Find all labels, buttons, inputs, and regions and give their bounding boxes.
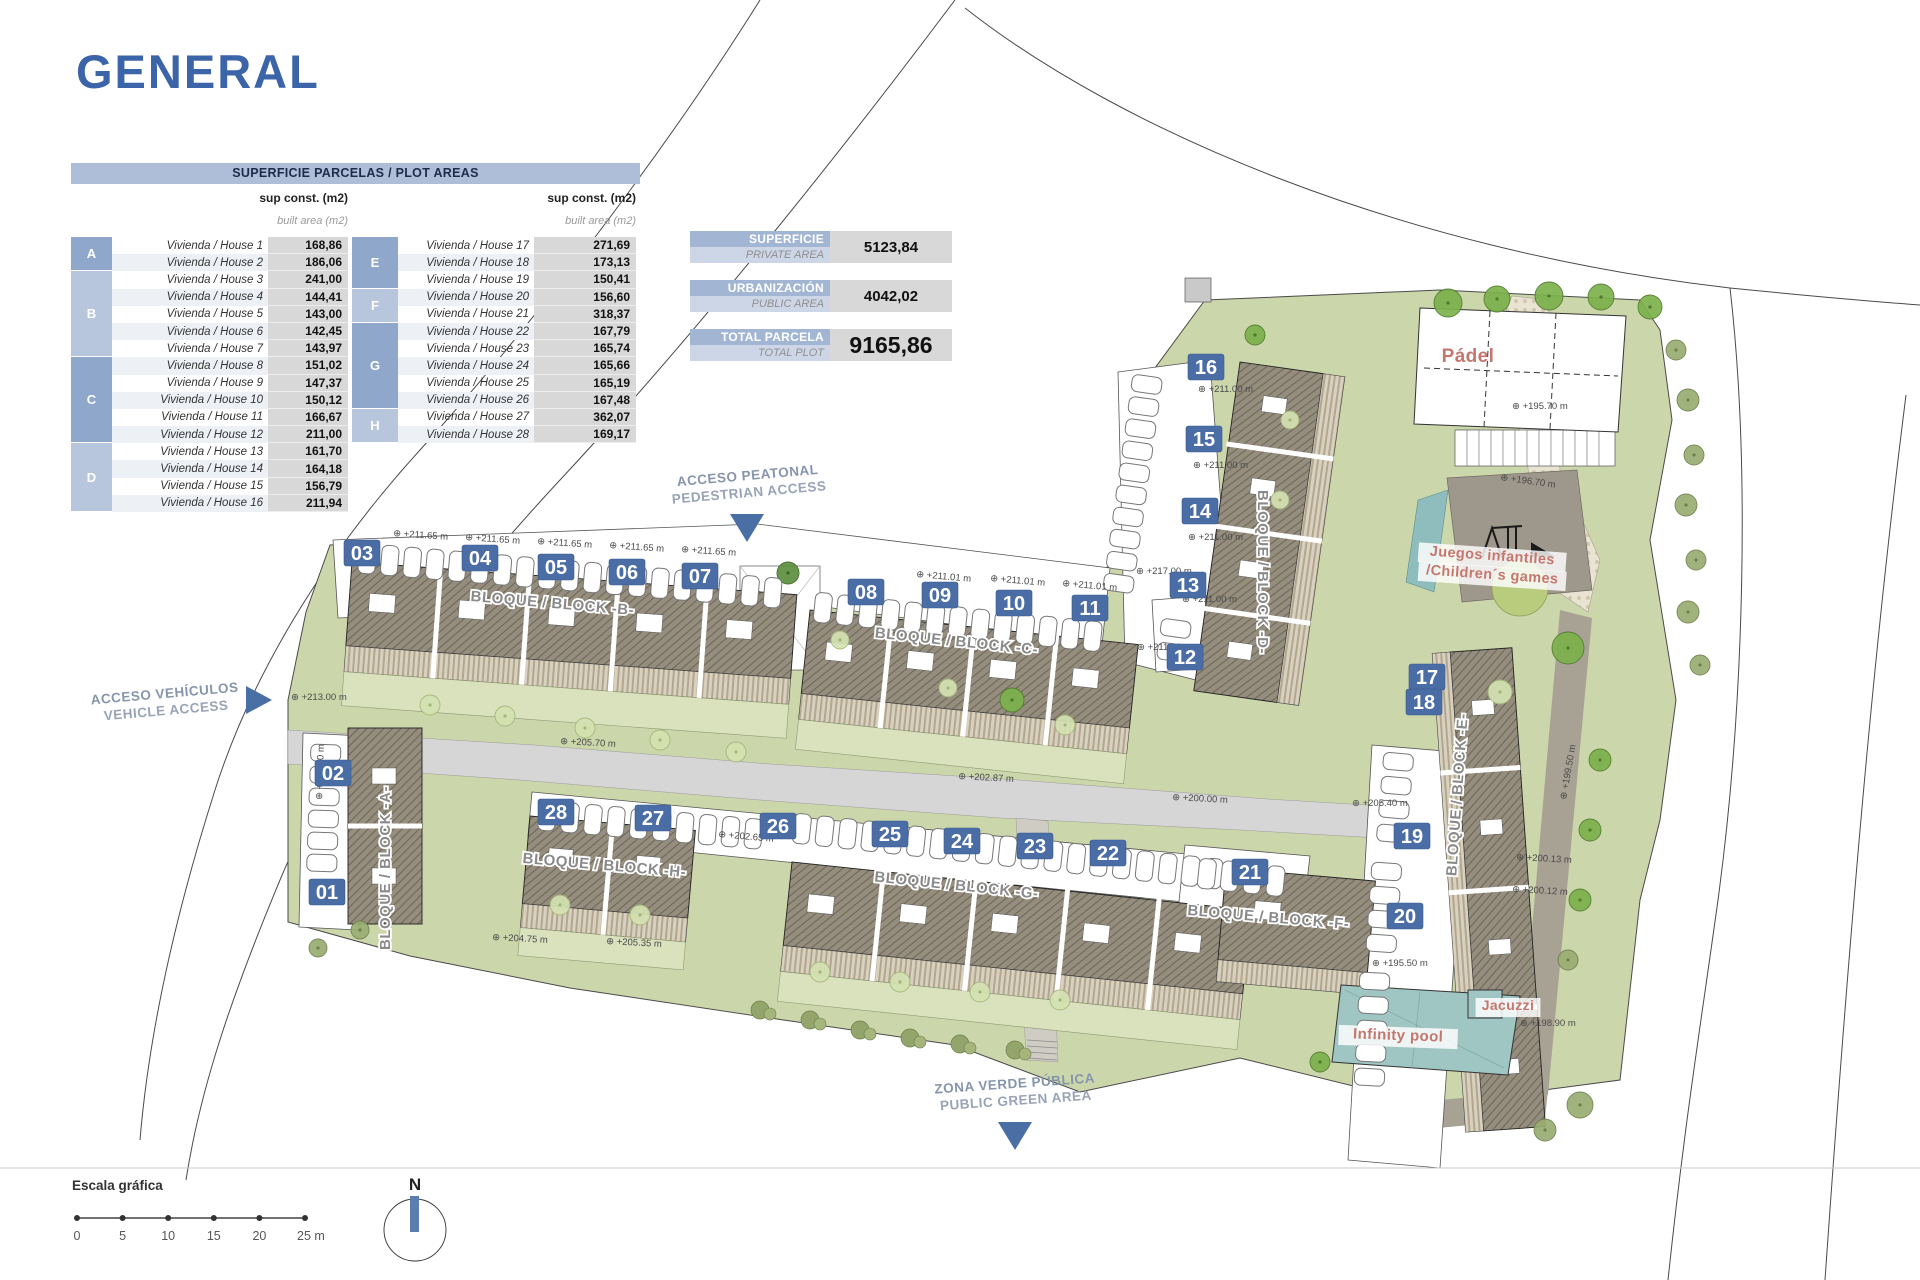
house-area-value: 211,94	[268, 495, 348, 512]
house-area-value: 165,74	[534, 340, 636, 357]
bush-icon	[764, 1008, 776, 1020]
tree-center	[1063, 723, 1066, 726]
tree-center	[1278, 498, 1281, 501]
col-subheader-left: built area (m2)	[188, 215, 348, 227]
car-space	[1038, 616, 1058, 648]
amenity-label-group: Infinity pool	[1338, 1025, 1458, 1049]
house-area-value: 143,97	[268, 340, 348, 357]
car-space	[998, 835, 1018, 867]
amenity-label: Jacuzzi	[1482, 997, 1535, 1013]
car-space	[1380, 776, 1411, 796]
house-area-value: 318,37	[534, 306, 636, 323]
scale-tick-label: 15	[207, 1229, 221, 1243]
car-space	[813, 592, 833, 624]
amenity-label-group: Jacuzzi	[1476, 997, 1541, 1017]
unit-badge-number: 19	[1401, 826, 1423, 848]
block-label: BLOQUE / BLOCK -A-	[377, 786, 394, 950]
house-label: Vivienda / House 24	[398, 357, 534, 374]
house-area-value: 144,41	[268, 289, 348, 306]
scale-tick	[211, 1215, 217, 1221]
bush-icon	[914, 1036, 926, 1048]
car-space	[1160, 618, 1192, 639]
unit-badge-number: 18	[1413, 692, 1435, 714]
house-area-value: 150,12	[268, 392, 348, 409]
unit-badge-number: 28	[545, 802, 567, 824]
unit-badge-number: 13	[1177, 575, 1199, 597]
block-f-building	[1216, 868, 1375, 995]
tree-center	[1674, 348, 1677, 351]
tree-center	[358, 928, 361, 931]
house-label: Vivienda / House 4	[112, 289, 268, 306]
summary-box: TOTAL PARCELATOTAL PLOT9165,86	[690, 329, 952, 361]
bush-icon	[1019, 1048, 1031, 1060]
unit-badge-number: 05	[545, 557, 567, 579]
summary-label-es: SUPERFICIE	[690, 231, 830, 247]
house-label: Vivienda / House 13	[112, 443, 268, 460]
group-letter: D	[71, 443, 112, 512]
scale-tick-label: 10	[161, 1229, 175, 1243]
tree-center	[818, 970, 821, 973]
house-label: Vivienda / House 2	[112, 254, 268, 271]
car-space	[1197, 858, 1217, 890]
house-label: Vivienda / House 1	[112, 237, 268, 254]
elevation-label: ⊕ +198.90 m	[1520, 1018, 1576, 1029]
car-space	[675, 812, 695, 843]
car-space	[308, 810, 339, 828]
house-label: Vivienda / House 3	[112, 271, 268, 288]
table-header: SUPERFICIE PARCELAS / PLOT AREAS	[71, 163, 640, 184]
tree-center	[1598, 758, 1601, 761]
car-space	[1131, 374, 1163, 395]
house-area-value: 241,00	[268, 271, 348, 288]
house-area-value: 165,19	[534, 375, 636, 392]
tree-center	[1698, 663, 1701, 666]
unit-badge-number: 27	[642, 808, 664, 830]
house-label: Vivienda / House 5	[112, 306, 268, 323]
house-area-value: 156,60	[534, 289, 636, 306]
unit-badge-number: 23	[1024, 836, 1046, 858]
tree-center	[838, 638, 841, 641]
tree-center	[1010, 698, 1013, 701]
house-area-value: 156,79	[268, 478, 348, 495]
house-label: Vivienda / House 23	[398, 340, 534, 357]
summary-label-en: PRIVATE AREA	[690, 247, 830, 263]
summary-value: 4042,02	[830, 280, 952, 312]
car-space	[307, 854, 338, 872]
tree-center	[1566, 958, 1569, 961]
car-space	[1109, 529, 1141, 550]
car-space	[1124, 418, 1156, 439]
scale-tick	[74, 1215, 80, 1221]
tree-center	[1547, 294, 1550, 297]
tree-center	[1495, 297, 1498, 300]
house-label: Vivienda / House 12	[112, 426, 268, 443]
house-area-value: 173,13	[534, 254, 636, 271]
unit-badge-number: 25	[879, 824, 901, 846]
tree-center	[658, 738, 661, 741]
group-letter: B	[71, 271, 112, 357]
unit-badge-number: 08	[855, 582, 877, 604]
tree-center	[1588, 828, 1591, 831]
unit-badge-number: 21	[1239, 862, 1261, 884]
car-space	[1366, 934, 1397, 953]
tree-center	[1692, 453, 1695, 456]
table-left-columns: AVivienda / House 1168,86Vivienda / Hous…	[71, 237, 348, 512]
house-area-value: 142,45	[268, 323, 348, 340]
summary-label-en: PUBLIC AREA	[690, 296, 830, 312]
house-area-value: 362,07	[534, 409, 636, 426]
elevation-label: ⊕ +213.00 m	[291, 692, 347, 703]
house-area-value: 167,48	[534, 392, 636, 409]
bush-icon	[864, 1028, 876, 1040]
scale-tick	[256, 1215, 262, 1221]
car-space	[1112, 506, 1144, 527]
tree-center	[503, 714, 506, 717]
unit-badge-number: 17	[1416, 667, 1438, 689]
house-area-value: 143,00	[268, 306, 348, 323]
tree-center	[786, 571, 789, 574]
unit-badge-number: 20	[1394, 906, 1416, 928]
car-space	[815, 815, 835, 847]
car-space	[1355, 1044, 1386, 1063]
house-label: Vivienda / House 10	[112, 392, 268, 409]
unit-badge-number: 26	[767, 816, 789, 838]
summary-box: SUPERFICIEPRIVATE AREA5123,84	[690, 231, 952, 263]
house-area-value: 165,66	[534, 357, 636, 374]
utility-cabin	[1185, 278, 1211, 302]
elevation-label: ⊕ +211.00 m	[1193, 460, 1248, 471]
tree-center	[898, 980, 901, 983]
unit-badge-number: 03	[351, 543, 373, 565]
house-label: Vivienda / House 22	[398, 323, 534, 340]
tree-center	[1694, 558, 1697, 561]
car-space	[1066, 843, 1086, 875]
page-title: GENERAL	[76, 44, 320, 99]
scale-title: Escala gráfica	[72, 1178, 163, 1193]
car-space	[1121, 440, 1153, 461]
house-label: Vivienda / House 21	[398, 306, 534, 323]
summary-value: 5123,84	[830, 231, 952, 263]
house-label: Vivienda / House 15	[112, 478, 268, 495]
scale-tick	[165, 1215, 171, 1221]
unit-badge-number: 07	[689, 566, 711, 588]
tree-center	[1599, 295, 1602, 298]
car-space	[1265, 865, 1285, 897]
scale-tick-label: 5	[119, 1229, 126, 1243]
car-space	[763, 577, 782, 608]
block-label: BLOQUE / BLOCK -D-	[1254, 490, 1271, 654]
col-subheader-right: built area (m2)	[476, 215, 636, 227]
house-area-value: 147,37	[268, 375, 348, 392]
house-area-value: 164,18	[268, 460, 348, 477]
amenity-label: Pádel	[1442, 346, 1495, 367]
tree-center	[316, 946, 319, 949]
house-label: Vivienda / House 25	[398, 375, 534, 392]
col-header-left: sup const. (m2)	[188, 191, 348, 205]
scale-tick-label: 0	[74, 1229, 81, 1243]
north-label: N	[409, 1175, 421, 1194]
car-space	[650, 568, 669, 599]
unit-badge-number: 11	[1079, 598, 1100, 620]
house-label: Vivienda / House 28	[398, 426, 534, 443]
car-space	[1135, 850, 1155, 882]
summary-value: 9165,86	[830, 329, 952, 361]
car-space	[1106, 551, 1138, 572]
elevation-label: ⊕ +211.00 m	[1188, 532, 1243, 543]
car-space	[1118, 462, 1150, 483]
unit-badge-number: 09	[929, 585, 951, 607]
tree-center	[638, 913, 641, 916]
house-label: Vivienda / House 8	[112, 357, 268, 374]
group-letter: H	[352, 409, 398, 443]
car-space	[1158, 853, 1178, 885]
elevation-label: ⊕ +205.40 m	[1352, 798, 1408, 809]
car-space	[1060, 618, 1080, 650]
tree-center	[1498, 690, 1501, 693]
unit-badge-number: 10	[1003, 593, 1025, 615]
tree-center	[946, 686, 949, 689]
car-space	[515, 556, 534, 587]
tree-center	[1648, 305, 1651, 308]
house-area-value: 166,67	[268, 409, 348, 426]
car-space	[1358, 996, 1389, 1015]
summary-box: URBANIZACIÓNPUBLIC AREA4042,02	[690, 280, 952, 312]
group-letter: C	[71, 357, 112, 443]
site-plan-page: N Escala gráfica0510152025 m ⊕ +211.65 m…	[0, 0, 1920, 1280]
house-area-value: 161,70	[268, 443, 348, 460]
house-area-value: 271,69	[534, 237, 636, 254]
car-space	[1383, 752, 1414, 772]
house-label: Vivienda / House 6	[112, 323, 268, 340]
tree-center	[1566, 646, 1569, 649]
scale-tick	[302, 1215, 308, 1221]
house-label: Vivienda / House 18	[398, 254, 534, 271]
house-area-value: 186,06	[268, 254, 348, 271]
house-label: Vivienda / House 14	[112, 460, 268, 477]
car-space	[403, 547, 422, 578]
house-label: Vivienda / House 20	[398, 289, 534, 306]
bush-icon	[814, 1018, 826, 1030]
unit-badge-number: 04	[469, 548, 492, 570]
tree-center	[978, 990, 981, 993]
house-area-value: 167,79	[534, 323, 636, 340]
car-space	[837, 818, 857, 850]
tree-center	[1684, 503, 1687, 506]
bush-icon	[964, 1042, 976, 1054]
unit-badge-number: 06	[616, 562, 638, 584]
tree-center	[1253, 333, 1256, 336]
table-right-columns: EVivienda / House 17271,69Vivienda / Hou…	[352, 237, 636, 443]
car-space	[1115, 484, 1147, 505]
unit-badge-number: 14	[1189, 501, 1212, 523]
unit-badge-number: 24	[951, 831, 974, 853]
elevation-label: ⊕ +211.00 m	[1198, 384, 1253, 395]
house-label: Vivienda / House 9	[112, 375, 268, 392]
tree-center	[1578, 1103, 1581, 1106]
house-area-value: 169,17	[534, 426, 636, 443]
car-space	[698, 814, 718, 845]
scale-tick-label: 25 m	[297, 1229, 325, 1243]
summary-label-es: TOTAL PARCELA	[690, 329, 830, 345]
group-letter: E	[352, 237, 398, 289]
car-space	[583, 562, 602, 593]
padel-court	[1414, 308, 1626, 432]
unit-badge-number: 16	[1195, 357, 1217, 379]
summary-label-es: URBANIZACIÓN	[690, 280, 830, 296]
house-area-value: 150,41	[534, 271, 636, 288]
pergola-steps	[1455, 430, 1615, 466]
car-space	[606, 806, 626, 837]
car-space	[380, 545, 399, 576]
area-summary: SUPERFICIEPRIVATE AREA5123,84URBANIZACIÓ…	[690, 231, 952, 378]
car-space	[718, 573, 737, 604]
col-header-right: sup const. (m2)	[476, 191, 636, 205]
unit-badge-number: 02	[322, 763, 344, 785]
tree-center	[583, 726, 586, 729]
house-label: Vivienda / House 7	[112, 340, 268, 357]
car-space	[740, 575, 759, 606]
elevation-label: ⊕ +195.70 m	[1512, 401, 1568, 412]
unit-badge-number: 12	[1174, 647, 1196, 669]
tree-center	[1578, 898, 1581, 901]
car-space	[1083, 620, 1103, 652]
tree-center	[1288, 418, 1291, 421]
tree-center	[1446, 301, 1449, 304]
group-letter: A	[71, 237, 112, 271]
house-area-value: 168,86	[268, 237, 348, 254]
house-label: Vivienda / House 17	[398, 237, 534, 254]
car-space	[425, 549, 444, 580]
car-space	[1354, 1068, 1385, 1087]
group-letter: F	[352, 289, 398, 323]
car-space	[307, 832, 338, 850]
group-letter: G	[352, 323, 398, 409]
amenity-label-group: Pádel	[1442, 346, 1495, 367]
house-label: Vivienda / House 16	[112, 495, 268, 512]
house-label: Vivienda / House 26	[398, 392, 534, 409]
amenity-label: Infinity pool	[1353, 1025, 1444, 1045]
house-area-value: 151,02	[268, 357, 348, 374]
car-space	[906, 825, 926, 857]
tree-center	[1318, 1060, 1321, 1063]
car-space	[1369, 886, 1400, 905]
house-label: Vivienda / House 27	[398, 409, 534, 426]
tree-center	[1686, 398, 1689, 401]
unit-badge-number: 15	[1193, 429, 1215, 451]
car-space	[1359, 972, 1390, 991]
tree-center	[1058, 998, 1061, 1001]
car-space	[583, 804, 603, 835]
house-area-value: 211,00	[268, 426, 348, 443]
tree-center	[1543, 1128, 1546, 1131]
unit-badge-number: 01	[316, 882, 338, 904]
scale-tick-label: 20	[252, 1229, 266, 1243]
summary-label-en: TOTAL PLOT	[690, 345, 830, 361]
car-space	[1371, 862, 1402, 881]
house-label: Vivienda / House 11	[112, 409, 268, 426]
tree-center	[1686, 610, 1689, 613]
scale-tick	[120, 1215, 126, 1221]
tree-center	[734, 750, 737, 753]
elevation-label: ⊕ +195.50 m	[1372, 958, 1428, 969]
car-space	[1128, 396, 1160, 417]
unit-badge-number: 22	[1097, 843, 1119, 865]
house-label: Vivienda / House 19	[398, 271, 534, 288]
tree-center	[558, 903, 561, 906]
tree-center	[428, 703, 431, 706]
